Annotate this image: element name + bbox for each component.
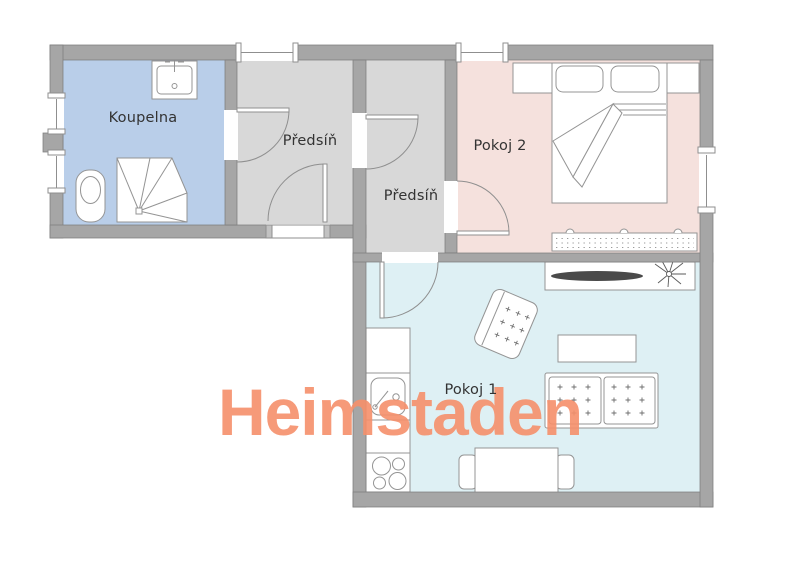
room-predsin-2	[366, 60, 445, 253]
washbasin-icon	[152, 58, 197, 99]
room-label-koupelna: Koupelna	[109, 110, 178, 126]
wall-pillar	[43, 133, 63, 152]
floor-plan-drawing	[0, 0, 800, 570]
window-left-2	[48, 150, 65, 193]
floor-plan: Heimstaden Koupelna Předsíň Předsíň Poko…	[0, 0, 800, 570]
coffee-table	[558, 335, 636, 362]
wall-top	[50, 45, 713, 60]
stove-icon	[366, 453, 410, 492]
room-label-pokoj-2: Pokoj 2	[473, 138, 526, 154]
tv-sideboard	[545, 258, 695, 290]
radiator	[552, 229, 697, 251]
wall-right	[700, 60, 713, 507]
window-left-1	[48, 93, 65, 134]
window-top-1	[236, 43, 298, 62]
window-top-2	[456, 43, 508, 62]
toilet-icon	[76, 170, 105, 222]
room-label-predsin-2: Předsíň	[384, 188, 438, 204]
room-label-predsin-1: Předsíň	[283, 133, 337, 149]
pillow-left	[556, 66, 603, 92]
heimstaden-watermark: Heimstaden	[218, 374, 582, 450]
chair-left	[459, 455, 477, 489]
pillow-right	[611, 66, 659, 92]
dining-table	[475, 448, 558, 493]
chair-right	[556, 455, 574, 489]
room-label-pokoj-1: Pokoj 1	[444, 382, 497, 398]
window-right	[698, 147, 715, 213]
wall-bottom	[353, 492, 713, 507]
dining-set	[459, 448, 574, 493]
tv-icon	[551, 271, 643, 281]
shower-icon	[117, 158, 187, 222]
